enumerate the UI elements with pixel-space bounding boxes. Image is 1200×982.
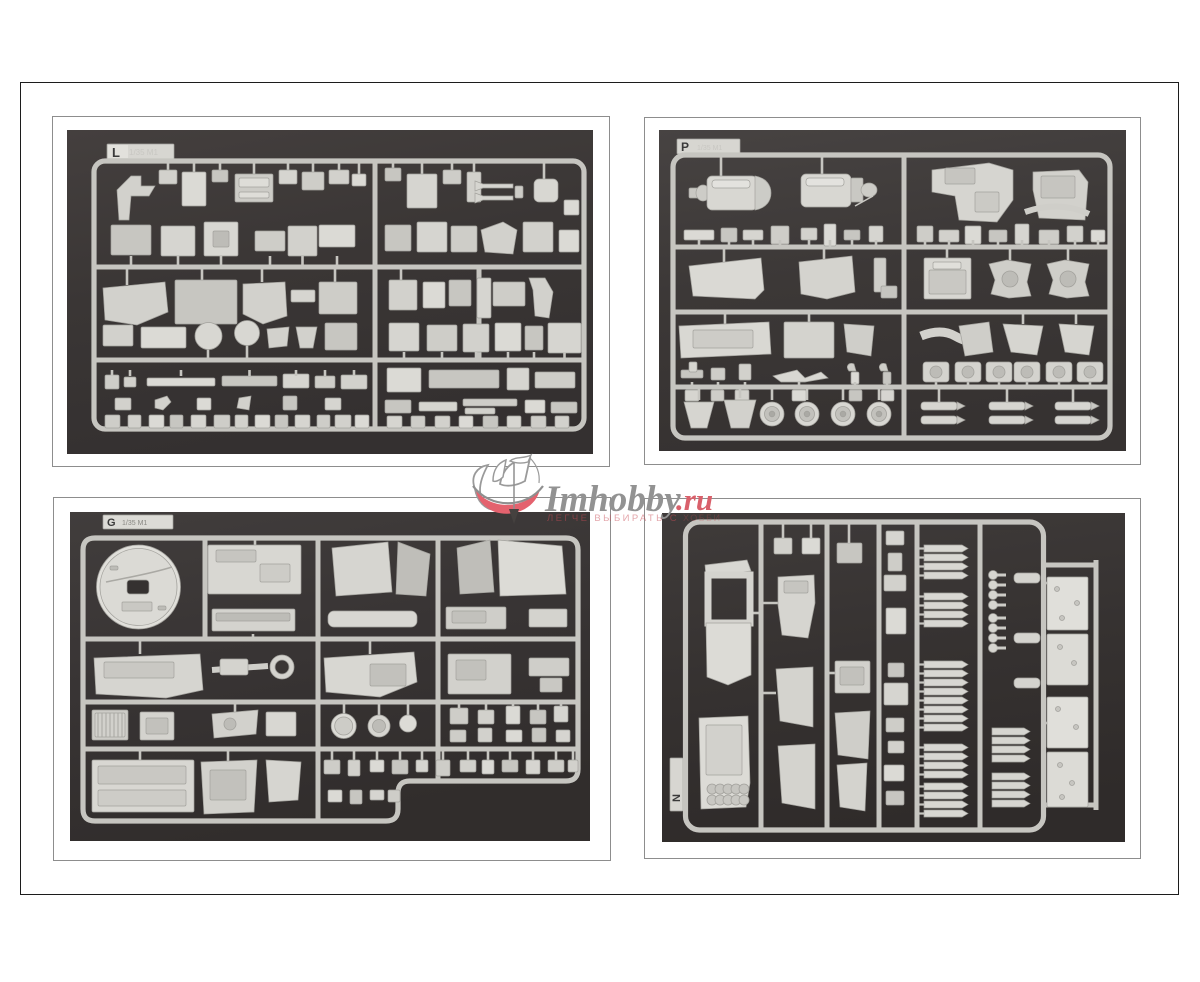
svg-text:.ru: .ru	[676, 482, 713, 517]
svg-text:ХОББИ: ХОББИ	[683, 513, 722, 523]
svg-text:ЛЕГЧЕ ВЫБИРАТЬ С: ЛЕГЧЕ ВЫБИРАТЬ С	[547, 513, 679, 524]
svg-text:P: P	[681, 140, 689, 154]
svg-text:1/35 M1: 1/35 M1	[697, 145, 722, 152]
svg-text:L: L	[112, 145, 120, 160]
svg-text:1/35 M1: 1/35 M1	[129, 148, 158, 157]
svg-text:1/35 M1: 1/35 M1	[122, 520, 147, 527]
svg-text:N: N	[671, 794, 683, 802]
svg-text:G: G	[107, 517, 116, 529]
